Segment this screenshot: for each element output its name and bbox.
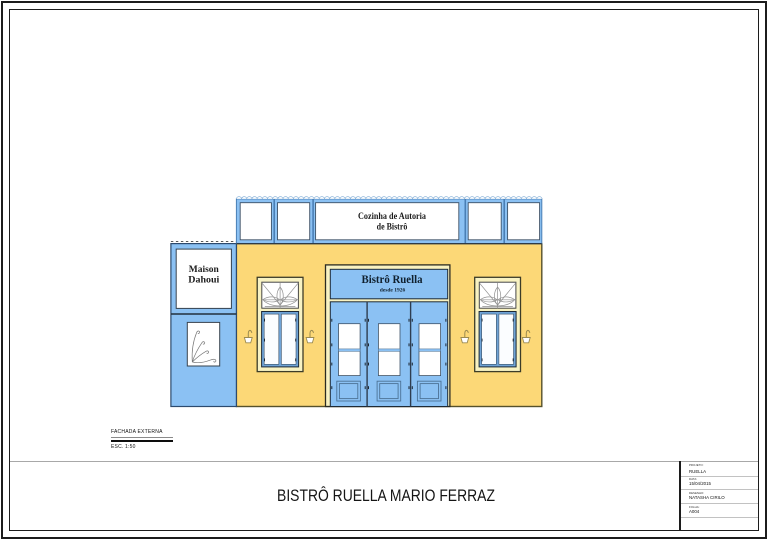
svg-text:Dahoui: Dahoui <box>188 274 219 285</box>
svg-text:Cozinha de Autoria: Cozinha de Autoria <box>358 211 426 222</box>
svg-text:Bistrô Ruella: Bistrô Ruella <box>362 272 423 286</box>
svg-text:de Bistrô: de Bistrô <box>377 221 408 232</box>
svg-text:desde 1926: desde 1926 <box>380 288 406 294</box>
